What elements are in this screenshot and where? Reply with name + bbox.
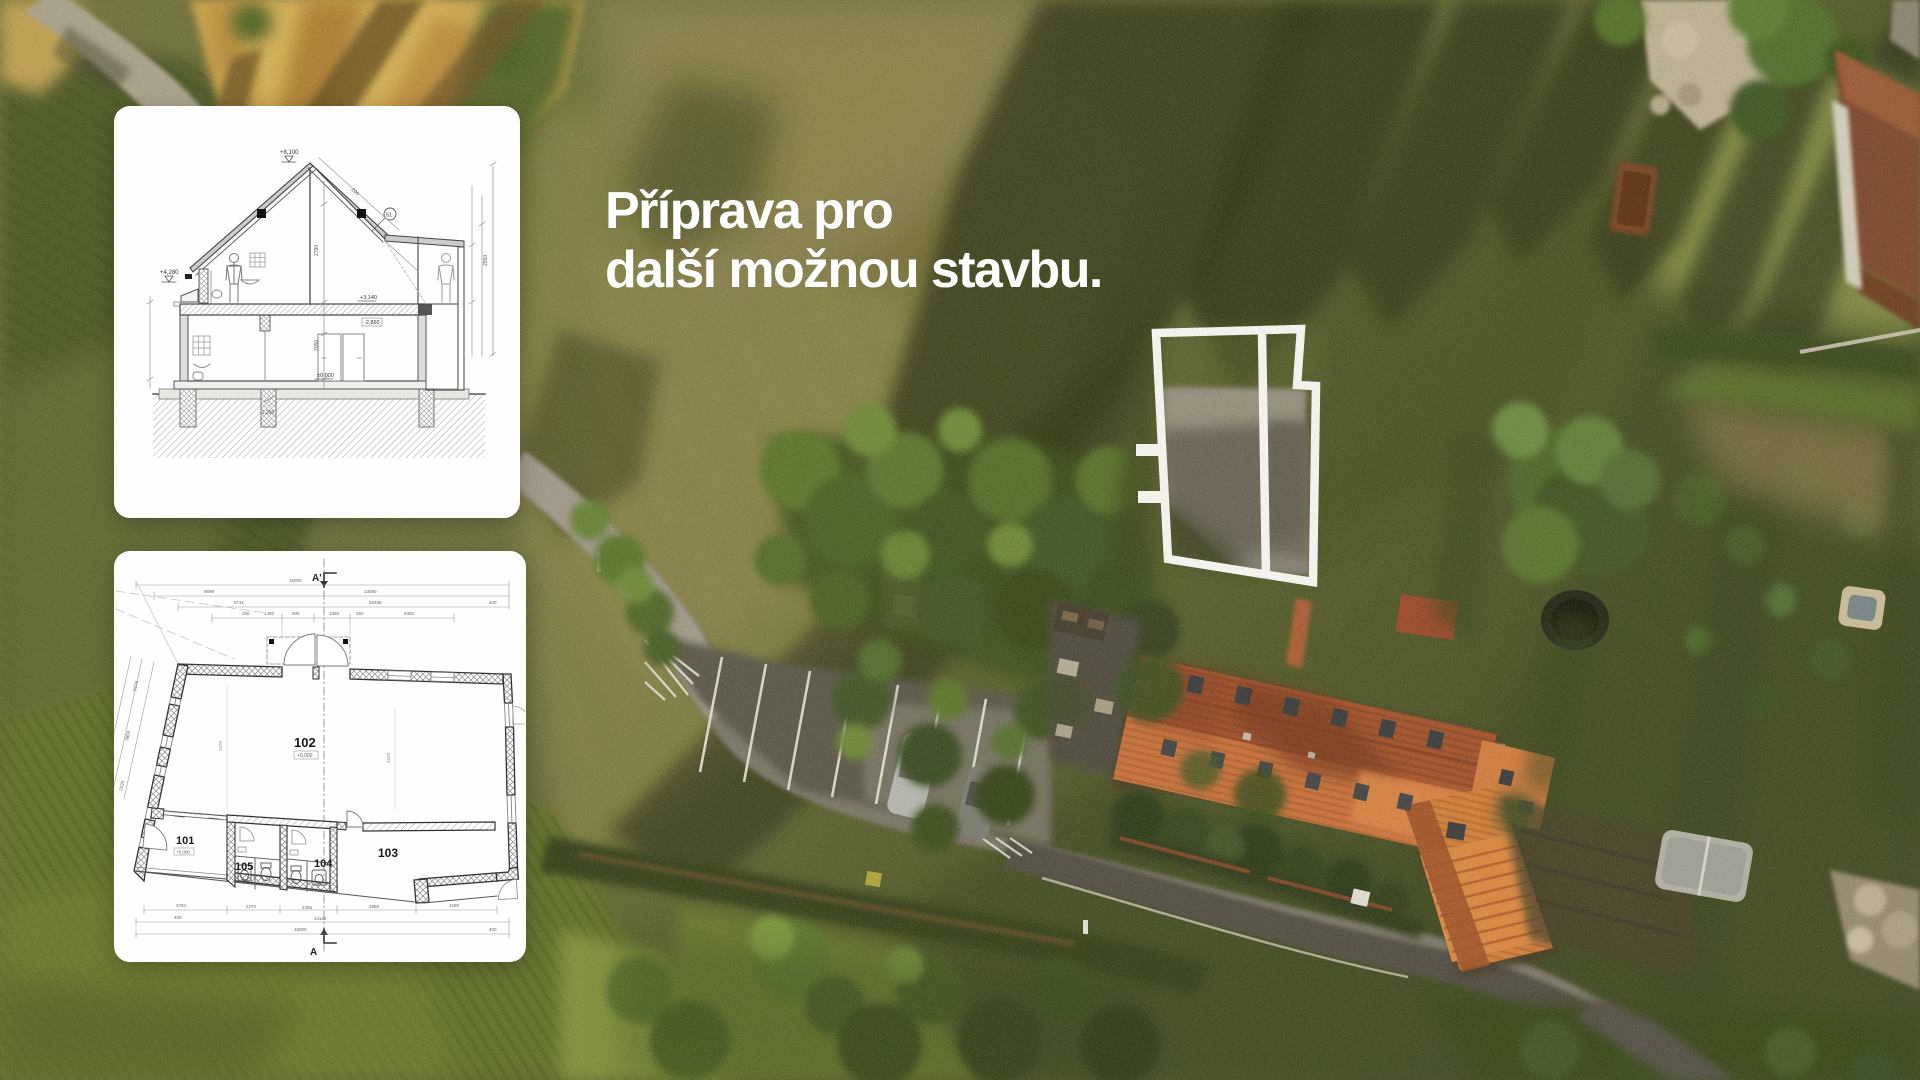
svg-text:102: 102 xyxy=(294,735,316,750)
svg-text:400: 400 xyxy=(174,915,182,920)
svg-text:400: 400 xyxy=(489,600,497,605)
svg-text:2550: 2550 xyxy=(483,255,489,266)
svg-text:2855: 2855 xyxy=(369,904,380,909)
svg-text:3420: 3420 xyxy=(386,752,391,763)
svg-text:-1,266: -1,266 xyxy=(260,410,274,416)
svg-text:9699: 9699 xyxy=(204,589,215,594)
svg-text:500: 500 xyxy=(292,611,300,616)
svg-text:+4,280: +4,280 xyxy=(160,270,179,276)
svg-text:200: 200 xyxy=(350,187,360,197)
svg-text:2455: 2455 xyxy=(302,905,313,910)
svg-text:1450: 1450 xyxy=(264,611,275,616)
svg-text:2790: 2790 xyxy=(314,245,320,256)
svg-text:103: 103 xyxy=(378,846,398,860)
svg-text:104: 104 xyxy=(314,858,333,870)
svg-text:15000: 15000 xyxy=(294,927,307,932)
svg-text:+0,000: +0,000 xyxy=(297,753,313,759)
svg-text:14134: 14134 xyxy=(314,916,327,921)
svg-text:13590: 13590 xyxy=(364,589,377,594)
svg-text:105: 105 xyxy=(235,861,253,873)
svg-text:2050: 2050 xyxy=(314,340,320,351)
svg-text:250: 250 xyxy=(242,611,250,616)
svg-text:3850: 3850 xyxy=(124,730,131,741)
svg-text:+8,100: +8,100 xyxy=(280,150,299,156)
svg-text:52458: 52458 xyxy=(369,600,382,605)
svg-text:1050: 1050 xyxy=(329,611,340,616)
svg-text:101: 101 xyxy=(176,835,194,847)
svg-text:3784: 3784 xyxy=(176,903,187,908)
svg-text:6350: 6350 xyxy=(404,611,415,616)
svg-text:2270: 2270 xyxy=(246,904,257,909)
svg-text:5175: 5175 xyxy=(132,680,139,691)
svg-text:A: A xyxy=(310,947,317,958)
svg-text:2220: 2220 xyxy=(118,780,125,791)
svg-text:51: 51 xyxy=(386,213,392,219)
svg-text:-2,860: -2,860 xyxy=(364,320,380,326)
svg-text:5731: 5731 xyxy=(234,600,245,605)
svg-text:400: 400 xyxy=(489,927,497,932)
svg-text:15000: 15000 xyxy=(289,578,302,583)
svg-text:+0,000: +0,000 xyxy=(176,850,190,855)
svg-text:7470: 7470 xyxy=(218,740,223,751)
svg-text:250: 250 xyxy=(356,611,364,616)
svg-text:A': A' xyxy=(312,573,322,584)
svg-text:+3,140: +3,140 xyxy=(360,295,377,301)
svg-text:4280: 4280 xyxy=(449,903,460,908)
